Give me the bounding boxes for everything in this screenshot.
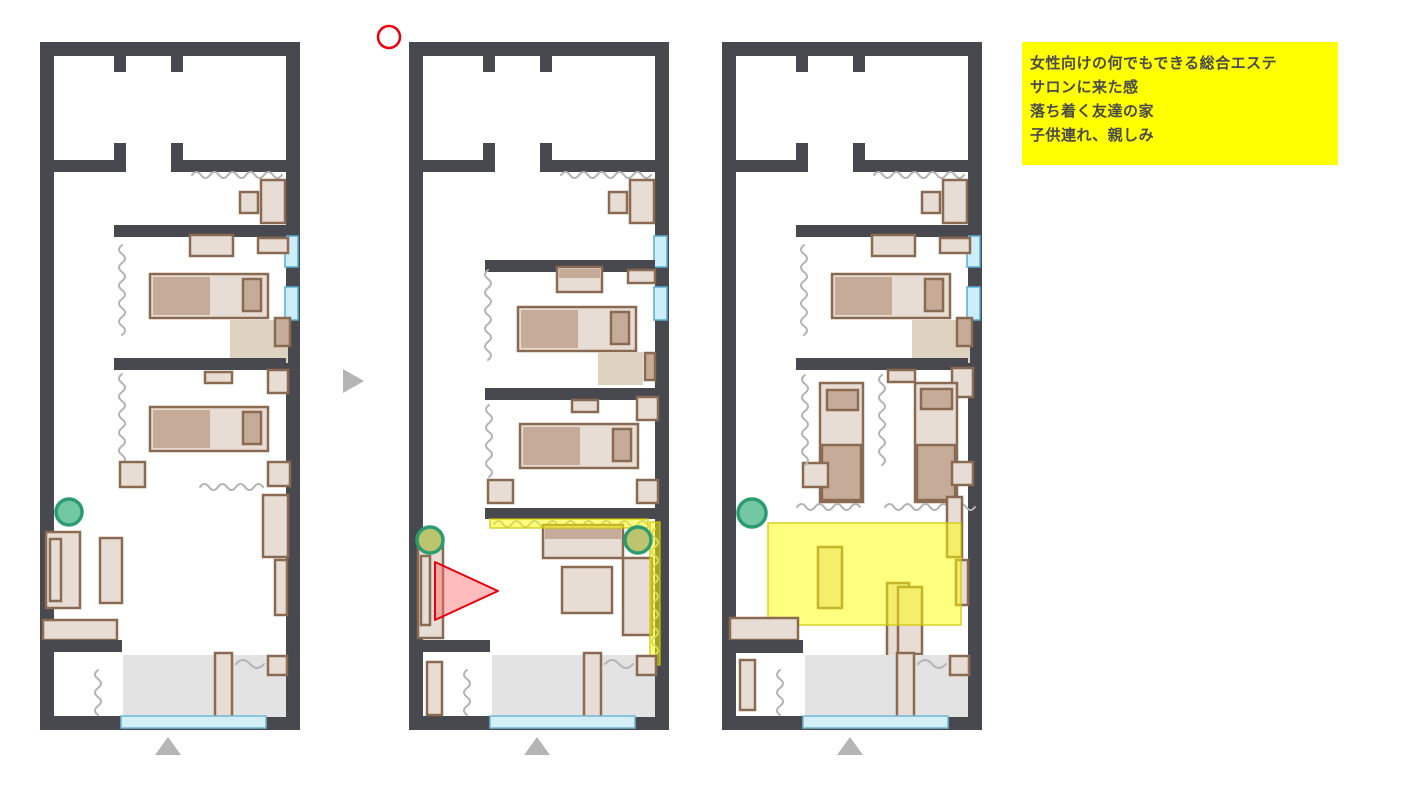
yellow-highlight-area[interactable]	[768, 523, 961, 625]
diagram-canvas: 女性向けの何でもできる総合エステ サロンに来た感 落ち着く友達の家 子供連れ、親…	[0, 0, 1411, 794]
pink-direction-arrow[interactable]	[435, 562, 498, 620]
plant-marker	[738, 499, 766, 527]
red-circle-marker[interactable]	[378, 26, 400, 48]
curtain-line	[802, 375, 808, 465]
note-line: 落ち着く友達の家	[1030, 99, 1330, 123]
floor-plan-2[interactable]	[409, 42, 669, 755]
curtain-line	[797, 504, 860, 510]
flow-arrow-right-icon[interactable]	[343, 369, 364, 393]
curtain-line	[485, 270, 491, 360]
note-line: サロンに来た感	[1030, 75, 1330, 99]
bed	[915, 383, 957, 502]
note-line: 子供連れ、親しみ	[1030, 123, 1330, 147]
yellow-highlight-strip[interactable]	[490, 519, 648, 528]
plant-marker	[625, 527, 651, 553]
curtain-line	[486, 405, 492, 477]
curtain-line	[200, 484, 263, 490]
floor-plan-1[interactable]	[40, 42, 300, 755]
floor-plan-3[interactable]	[722, 42, 982, 755]
note-line: 女性向けの何でもできる総合エステ	[1030, 51, 1330, 75]
curtain-line	[879, 375, 885, 465]
plant-marker	[56, 499, 82, 525]
sticky-note[interactable]: 女性向けの何でもできる総合エステ サロンに来た感 落ち着く友達の家 子供連れ、親…	[1022, 42, 1338, 165]
plant-marker	[417, 527, 443, 553]
curtain-line	[119, 374, 125, 464]
